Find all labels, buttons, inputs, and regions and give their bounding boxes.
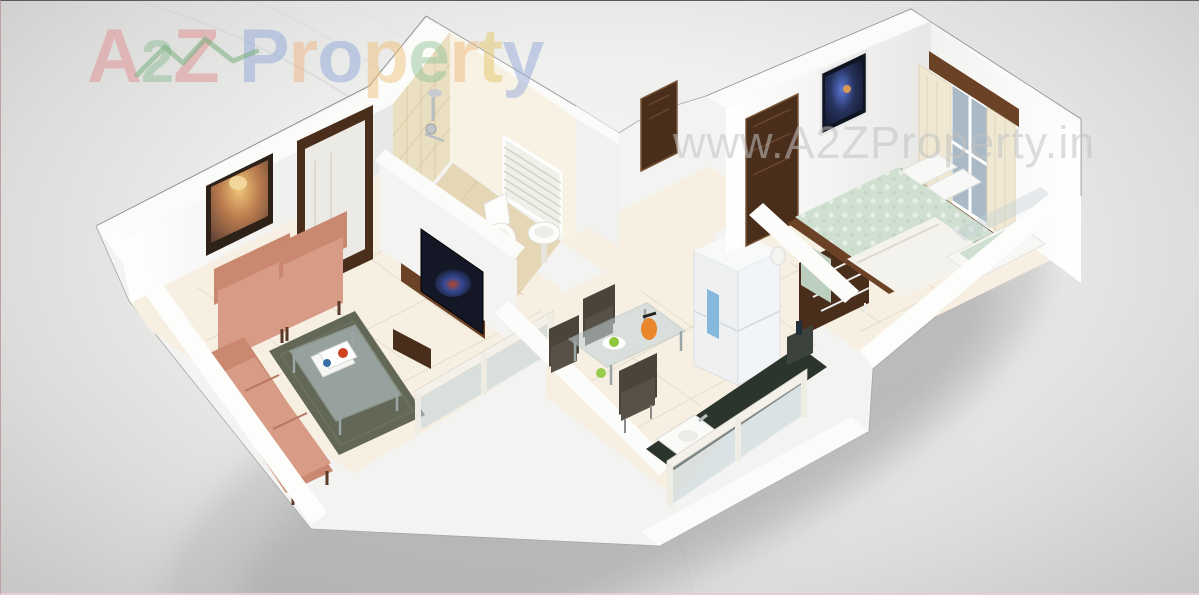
logo-letter: p bbox=[363, 14, 408, 99]
refrigerator bbox=[694, 231, 780, 385]
logo-letter: t bbox=[478, 14, 502, 99]
logo-letter: y bbox=[502, 14, 543, 99]
logo-letter: r bbox=[289, 14, 318, 99]
watermark-text: www.A2ZProperty.in bbox=[673, 117, 1095, 169]
lime-fruit bbox=[596, 368, 606, 378]
logo-letter: r bbox=[449, 14, 478, 99]
floor-vase bbox=[771, 247, 785, 265]
logo-letter: e bbox=[408, 14, 449, 99]
logo-roofline-icon bbox=[133, 33, 273, 83]
tv-picture bbox=[435, 269, 471, 297]
fridge-bottle-rack bbox=[707, 289, 719, 339]
logo-letter: o bbox=[317, 14, 362, 99]
salad-plate bbox=[602, 336, 626, 350]
floor-plan-render-image: www.A2ZProperty.in A2Z Property bbox=[0, 0, 1199, 595]
